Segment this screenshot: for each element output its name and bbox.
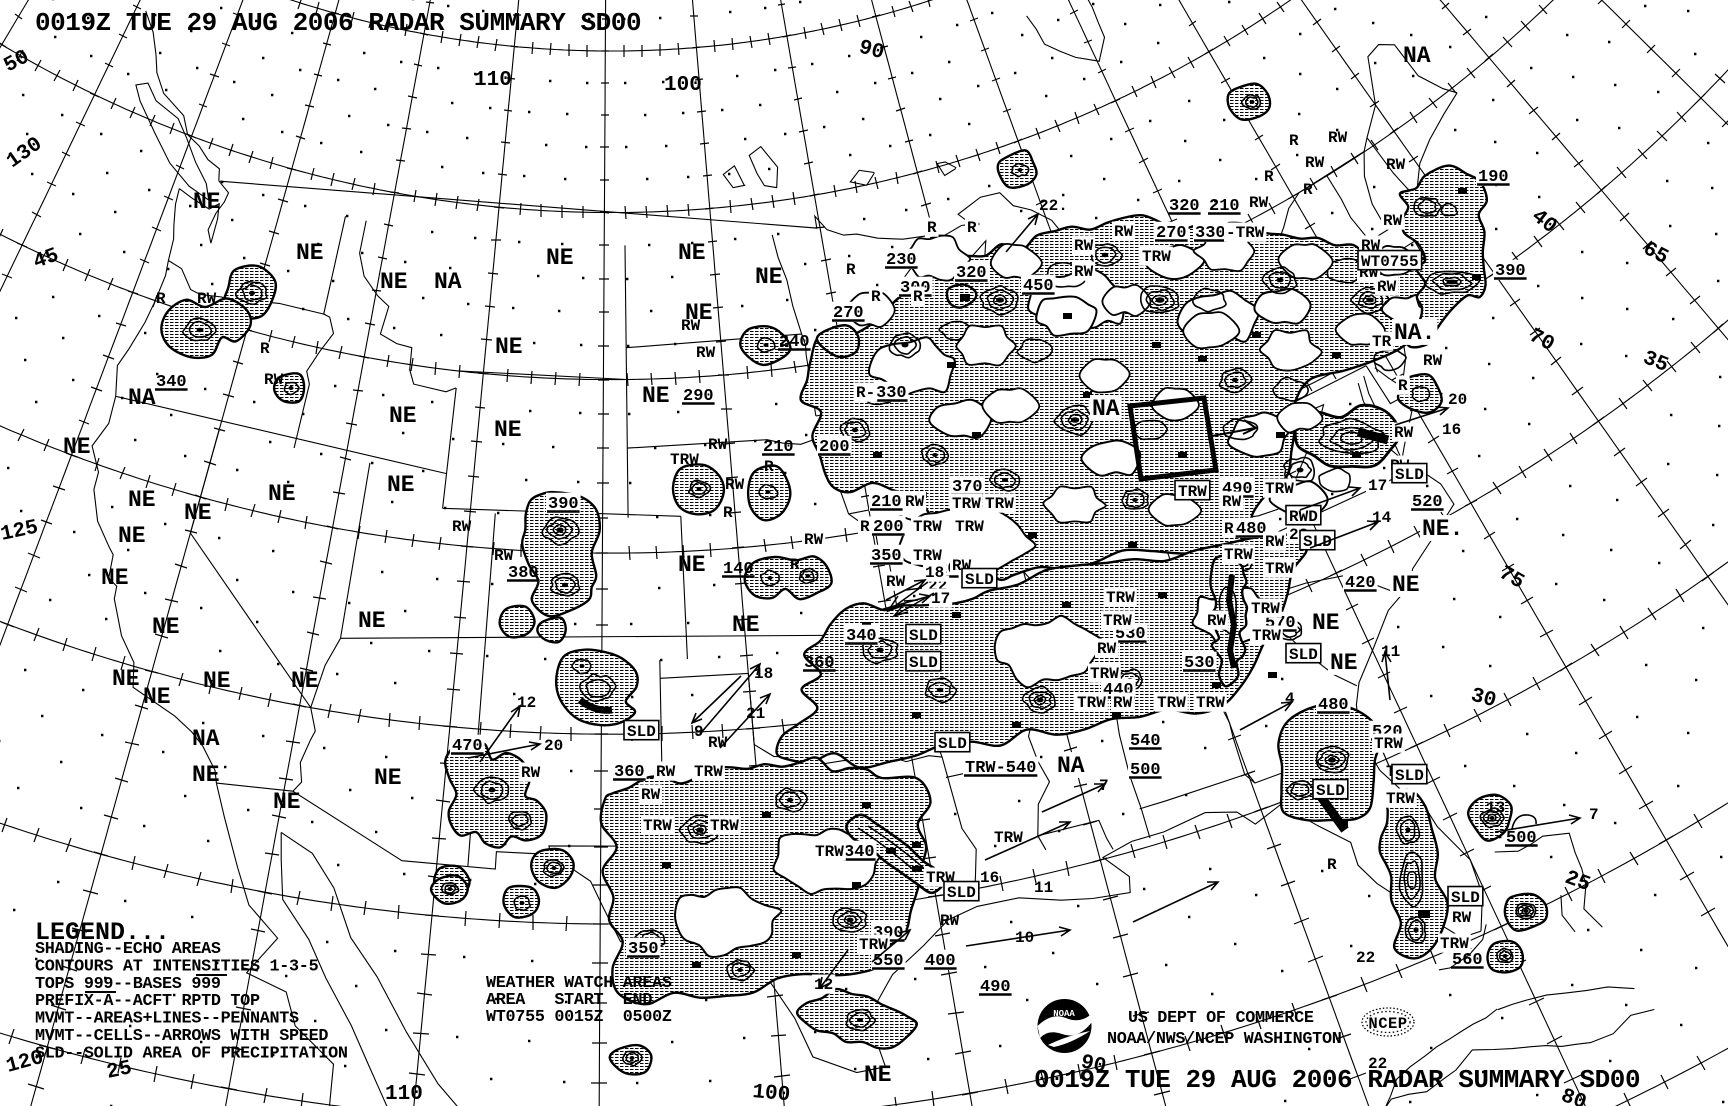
svg-text:TRW: TRW	[670, 451, 699, 469]
svg-text:RW: RW	[725, 476, 745, 494]
svg-text:SLD: SLD	[965, 571, 994, 589]
svg-text:NE: NE	[184, 500, 212, 526]
svg-text:NE: NE	[273, 789, 301, 815]
svg-text:NE: NE	[546, 245, 574, 271]
svg-text:RW: RW	[1114, 223, 1134, 241]
svg-text:WT0755 0015Z 0500Z: WT0755 0015Z 0500Z	[486, 1008, 672, 1027]
svg-text:R: R	[1224, 520, 1234, 538]
svg-text:NE: NE	[268, 481, 296, 507]
svg-text:RW: RW	[1207, 612, 1227, 630]
svg-text:CONTOURS AT INTENSITIES 1-3-5: CONTOURS AT INTENSITIES 1-3-5	[35, 957, 319, 976]
svg-text:NE: NE	[128, 487, 156, 513]
svg-text:-TRW: -TRW	[1226, 224, 1265, 242]
svg-text:16: 16	[980, 869, 999, 887]
svg-text:RW: RW	[1328, 129, 1348, 147]
svg-text:NE: NE	[1330, 650, 1358, 676]
svg-text:TRW: TRW	[1224, 546, 1253, 564]
svg-text:PREFIX-A--ACFT RPTD TOP: PREFIX-A--ACFT RPTD TOP	[35, 992, 260, 1011]
svg-text:NE: NE	[374, 765, 402, 791]
svg-text:NA: NA	[1403, 43, 1431, 69]
svg-text:NE: NE	[192, 762, 220, 788]
svg-text:RW: RW	[696, 344, 716, 362]
svg-text:NE: NE	[101, 565, 129, 591]
svg-text:NCEP: NCEP	[1368, 1015, 1407, 1033]
svg-text:NOAA: NOAA	[1053, 1009, 1075, 1019]
svg-text:NE: NE	[193, 189, 221, 215]
svg-text:NE: NE	[732, 612, 760, 638]
svg-text:22: 22	[1368, 1055, 1387, 1073]
svg-text:NE: NE	[380, 269, 408, 295]
svg-text:0019Z TUE 29 AUG 2006 RADAR SU: 0019Z TUE 29 AUG 2006 RADAR SUMMARY SD00	[1034, 1065, 1640, 1095]
svg-text:NE: NE	[152, 614, 180, 640]
svg-text:TRW: TRW	[1090, 665, 1119, 683]
svg-text:WT0755: WT0755	[1361, 253, 1419, 271]
svg-text:TRW: TRW	[1142, 248, 1171, 266]
svg-text:RW: RW	[1074, 263, 1094, 281]
svg-text:R: R	[790, 556, 800, 574]
svg-text:NE: NE	[1392, 572, 1420, 598]
svg-text:TRW: TRW	[1440, 935, 1469, 953]
svg-text:TR: TR	[1372, 333, 1392, 351]
svg-text:TRW: TRW	[1251, 600, 1280, 618]
svg-text:NE: NE	[387, 472, 415, 498]
svg-text:MVMT--AREAS+LINES--PENNANTS: MVMT--AREAS+LINES--PENNANTS	[35, 1010, 299, 1029]
svg-text:RW: RW	[197, 290, 217, 308]
svg-text:R: R	[1327, 856, 1337, 874]
svg-text:NA: NA	[128, 385, 156, 411]
svg-text:NE: NE	[291, 668, 319, 694]
svg-text:TRW: TRW	[1157, 694, 1186, 712]
svg-text:NE: NE	[1312, 610, 1340, 636]
svg-text:110: 110	[385, 1083, 423, 1106]
svg-text:SLD: SLD	[1289, 646, 1318, 664]
svg-text:NE: NE	[358, 608, 386, 634]
svg-text:100: 100	[751, 1081, 791, 1106]
svg-text:SLD: SLD	[627, 723, 656, 741]
svg-text:TRW: TRW	[1386, 790, 1415, 808]
svg-text:TRW: TRW	[1077, 694, 1106, 712]
svg-text:NE: NE	[864, 1062, 892, 1088]
svg-text:R: R	[1303, 181, 1313, 199]
svg-text:RW: RW	[1386, 156, 1406, 174]
svg-text:NA: NA	[434, 269, 462, 295]
svg-text:RW: RW	[1383, 212, 1403, 230]
svg-text:R: R	[156, 290, 166, 308]
svg-text:R: R	[1264, 168, 1274, 186]
svg-text:R: R	[723, 504, 733, 522]
svg-text:TRW: TRW	[815, 843, 844, 861]
svg-text:RW: RW	[1097, 640, 1117, 658]
svg-text:110: 110	[474, 69, 512, 92]
svg-text:18: 18	[925, 564, 944, 582]
svg-text:TRW: TRW	[1265, 560, 1294, 578]
svg-text:16: 16	[1442, 421, 1461, 439]
svg-text:RW: RW	[708, 436, 728, 454]
svg-text:0019Z TUE 29 AUG 2006 RADAR SU: 0019Z TUE 29 AUG 2006 RADAR SUMMARY SD00	[35, 8, 641, 38]
svg-text:TRW: TRW	[955, 518, 984, 536]
svg-text:RW: RW	[494, 547, 514, 565]
svg-text:R: R	[913, 288, 923, 306]
svg-text:NE: NE	[203, 668, 231, 694]
svg-text:NOAA/NWS/NCEP WASHINGTON: NOAA/NWS/NCEP WASHINGTON	[1107, 1030, 1342, 1049]
svg-text:NE: NE	[642, 383, 670, 409]
svg-text:R: R	[967, 219, 977, 237]
svg-text:NE: NE	[389, 403, 417, 429]
svg-text:MVMT--CELLS--ARROWS WITH SPEED: MVMT--CELLS--ARROWS WITH SPEED	[35, 1027, 328, 1046]
svg-text:TRW: TRW	[1252, 627, 1281, 645]
svg-text:SLD--SOLID AREA OF PRECIPITATI: SLD--SOLID AREA OF PRECIPITATION	[35, 1044, 348, 1063]
svg-text:RW: RW	[264, 371, 284, 389]
svg-text:NE: NE	[143, 684, 171, 710]
svg-text:TOPS 999--BASES 999: TOPS 999--BASES 999	[35, 975, 221, 994]
svg-text:RW: RW	[521, 764, 541, 782]
svg-text:RW: RW	[681, 317, 701, 335]
svg-text:22: 22	[1356, 949, 1375, 967]
svg-text:SLD: SLD	[1395, 466, 1424, 484]
svg-text:RW: RW	[1394, 424, 1414, 442]
svg-text:RW: RW	[940, 912, 960, 930]
svg-text:SLD: SLD	[909, 654, 938, 672]
svg-text:RW: RW	[1249, 194, 1269, 212]
svg-text:RWD: RWD	[1289, 508, 1318, 526]
svg-text:TRW: TRW	[913, 518, 942, 536]
svg-text:SLD: SLD	[909, 627, 938, 645]
svg-text:R: R	[927, 219, 937, 237]
svg-text:RW: RW	[1074, 237, 1094, 255]
svg-text:R: R	[1289, 132, 1299, 150]
svg-text:NE: NE	[63, 434, 91, 460]
svg-text:RW: RW	[641, 786, 661, 804]
svg-text:RW: RW	[886, 573, 906, 591]
svg-text:RW: RW	[1265, 533, 1285, 551]
svg-text:RW: RW	[1113, 694, 1133, 712]
svg-text:RW: RW	[452, 518, 472, 536]
svg-text:17: 17	[1368, 477, 1387, 495]
svg-text:NA: NA	[1092, 396, 1120, 422]
svg-text:RW: RW	[1423, 352, 1443, 370]
svg-text:SLD: SLD	[1395, 767, 1424, 785]
svg-text:R: R	[860, 518, 870, 536]
svg-text:SLD: SLD	[1451, 889, 1480, 907]
svg-text:TRW: TRW	[985, 495, 1014, 513]
svg-text:NE: NE	[755, 264, 783, 290]
svg-text:US DEPT OF COMMERCE: US DEPT OF COMMERCE	[1128, 1009, 1314, 1028]
svg-text:R: R	[871, 288, 881, 306]
svg-text:TRW: TRW	[1178, 483, 1207, 501]
svg-text:TRW: TRW	[1106, 589, 1135, 607]
svg-text:21: 21	[746, 705, 765, 723]
svg-text:RW: RW	[1452, 909, 1472, 927]
svg-text:NE: NE	[112, 666, 140, 692]
svg-text:R: R	[764, 458, 774, 476]
svg-text:RW: RW	[905, 493, 925, 511]
svg-text:20: 20	[1448, 391, 1467, 409]
svg-text:TRW: TRW	[1265, 480, 1294, 498]
svg-text:TRW: TRW	[1196, 694, 1225, 712]
svg-text:RW: RW	[804, 531, 824, 549]
svg-text:NE: NE	[678, 552, 706, 578]
svg-text:R-: R-	[856, 384, 875, 402]
svg-text:7: 7	[1589, 806, 1599, 824]
svg-text:TRW: TRW	[1103, 612, 1132, 630]
svg-text:R: R	[260, 340, 270, 358]
svg-text:20: 20	[544, 737, 563, 755]
svg-text:11: 11	[1034, 879, 1053, 897]
svg-text:SLD: SLD	[1316, 782, 1345, 800]
svg-text:TRW: TRW	[643, 817, 672, 835]
svg-text:TRW: TRW	[694, 763, 723, 781]
svg-text:RW: RW	[1305, 154, 1325, 172]
svg-text:TRW: TRW	[1374, 735, 1403, 753]
svg-text:NE: NE	[678, 240, 706, 266]
svg-text:13: 13	[1486, 799, 1505, 817]
svg-text:NE.: NE.	[1422, 516, 1463, 542]
svg-text:TRW: TRW	[913, 547, 942, 565]
svg-text:100: 100	[664, 74, 702, 97]
svg-text:SHADING--ECHO AREAS: SHADING--ECHO AREAS	[35, 940, 221, 959]
svg-text:R: R	[1398, 377, 1408, 395]
svg-text:22.: 22.	[1039, 197, 1068, 215]
svg-text:SLD: SLD	[938, 735, 967, 753]
svg-text:17: 17	[931, 590, 950, 608]
svg-text:NE: NE	[494, 417, 522, 443]
svg-text:TRW: TRW	[710, 817, 739, 835]
svg-text:NE: NE	[118, 523, 146, 549]
svg-text:NA.: NA.	[1394, 320, 1435, 346]
svg-text:NA: NA	[192, 726, 220, 752]
svg-text:RW: RW	[1222, 493, 1242, 511]
svg-text:NA: NA	[1057, 753, 1085, 779]
svg-text:R: R	[846, 261, 856, 279]
svg-text:NE: NE	[495, 334, 523, 360]
svg-text:SLD: SLD	[947, 884, 976, 902]
svg-text:12: 12	[814, 976, 833, 994]
svg-text:TRW: TRW	[952, 495, 981, 513]
svg-text:RW: RW	[656, 763, 676, 781]
svg-text:NE: NE	[296, 240, 324, 266]
